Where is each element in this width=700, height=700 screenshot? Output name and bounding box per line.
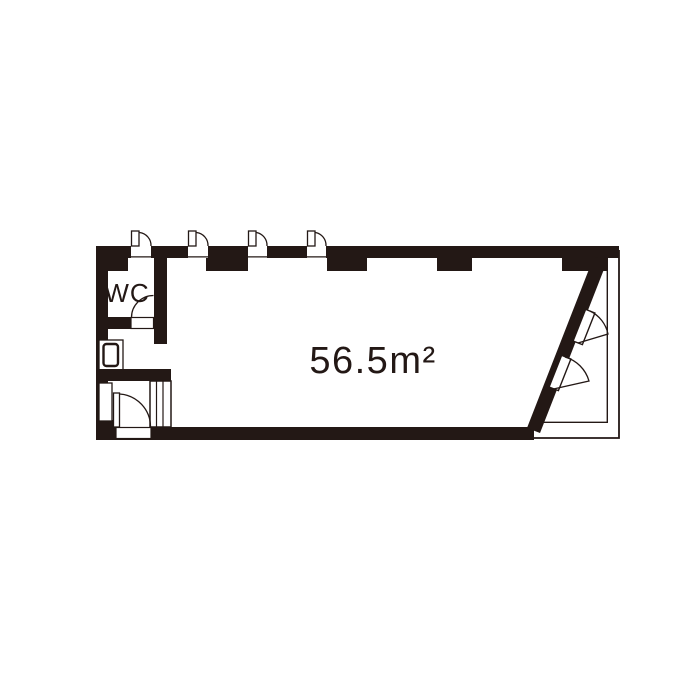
wall-bottom	[96, 427, 534, 440]
pier-4	[437, 258, 472, 271]
entry-wall-recess	[99, 383, 112, 421]
pier-2	[206, 258, 248, 271]
washbasin-icon	[104, 344, 119, 366]
pier-5	[562, 258, 608, 271]
pier-3	[327, 258, 367, 271]
wc-bottom-wall	[96, 317, 131, 329]
wc-right-wall	[154, 258, 167, 344]
entrance-threshold	[116, 428, 151, 439]
entry-partition-wall	[96, 369, 171, 381]
pier-1	[96, 258, 128, 271]
floor-plan-drawing: WC 56.5m²	[0, 0, 700, 700]
entrance-door-leaf	[114, 393, 120, 427]
floor-plan-canvas: WC 56.5m²	[0, 0, 700, 700]
room-area-label: 56.5m²	[309, 340, 436, 382]
wall-top	[96, 246, 619, 258]
shoe-cabinet	[150, 381, 171, 427]
wc-door-threshold	[131, 318, 154, 329]
wc-room-label: WC	[104, 278, 149, 308]
